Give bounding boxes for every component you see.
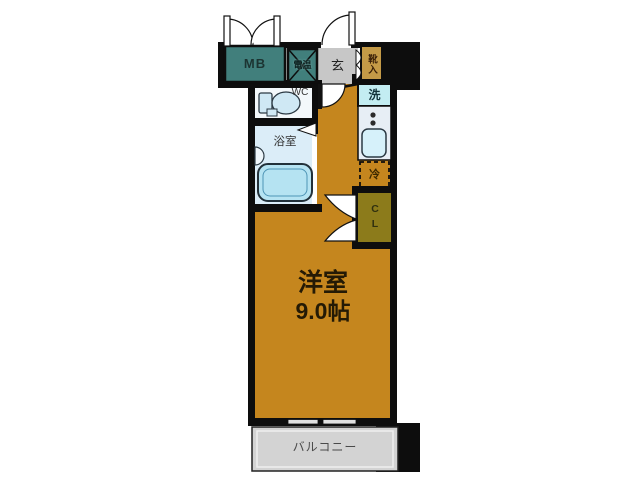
closet-box — [358, 193, 391, 242]
meter-box — [225, 46, 285, 82]
hallway-door-leaf — [318, 84, 322, 109]
entrance-door-leaf — [349, 12, 355, 45]
mb-door-leaf-right — [274, 16, 280, 46]
washer-box — [358, 84, 391, 106]
mb-door-arc-left — [227, 19, 253, 45]
burner-dot-2 — [370, 120, 375, 125]
wall-bottom — [248, 418, 397, 426]
window-right — [323, 420, 356, 425]
entrance-door-arc — [322, 15, 352, 45]
wall-closet-bottom — [352, 242, 397, 249]
mb-door-leaf-left — [224, 16, 230, 46]
wall-bath-bottom — [248, 204, 322, 212]
floorplan-drawing — [0, 0, 640, 480]
kitchen-sink — [362, 129, 386, 157]
shoe-cabinet-box — [361, 46, 382, 80]
floorplan-canvas: MB 電温 玄 靴入 WC 浴室 洗 冷 CL 洋室 9.0帖 バルコニー — [0, 0, 640, 480]
toilet-base — [267, 109, 277, 116]
wall-closet-top — [352, 186, 397, 193]
wall-left-outer — [248, 86, 255, 426]
window-left — [288, 420, 318, 425]
wall-wc-bath — [250, 118, 318, 126]
burner-dot-1 — [370, 112, 375, 117]
balcony-area — [252, 427, 398, 471]
mb-door-arc-right — [251, 19, 277, 45]
bathtub — [258, 164, 312, 201]
